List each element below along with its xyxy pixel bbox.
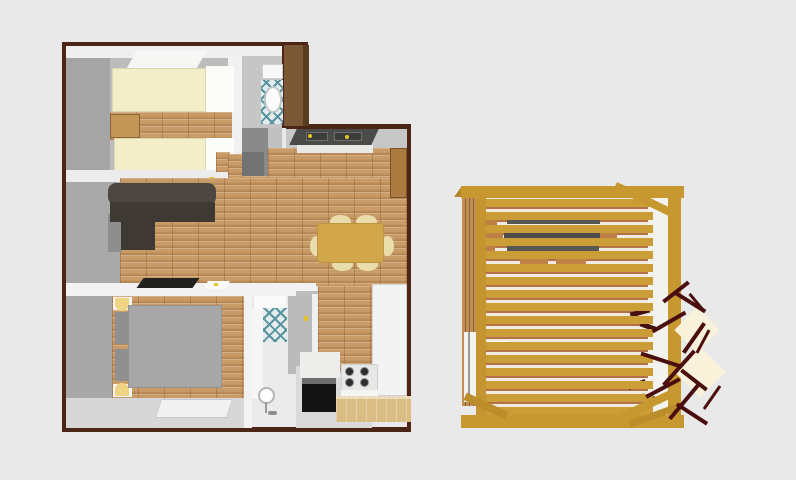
pergola-slat-1	[485, 199, 653, 207]
pergola-slat-8	[485, 290, 653, 298]
pergola-beam-left	[476, 188, 486, 426]
pergola-slat-13	[485, 355, 653, 363]
pergola-slat-4	[485, 238, 653, 246]
pergola-sidewall-lower	[464, 332, 476, 402]
pergola-beam-top	[461, 186, 684, 198]
pergola-slat-11	[485, 329, 653, 337]
pergola-slat-16	[485, 394, 653, 402]
pergola-sidewall-lower-line	[468, 332, 470, 402]
pergola-slat-12	[485, 342, 653, 350]
3d-view-canvas[interactable]	[0, 0, 796, 480]
pergola-view[interactable]	[0, 0, 796, 480]
pergola-slat-6	[485, 264, 653, 272]
pergola-slat-2	[485, 212, 653, 220]
pergola-slat-9	[485, 303, 653, 311]
pergola-slat-3	[485, 225, 653, 233]
pergola-slat-14	[485, 368, 653, 376]
pergola-slat-15	[485, 381, 653, 389]
pergola-slat-10	[485, 316, 653, 324]
pergola-slat-7	[485, 277, 653, 285]
pergola-slat-5	[485, 251, 653, 259]
